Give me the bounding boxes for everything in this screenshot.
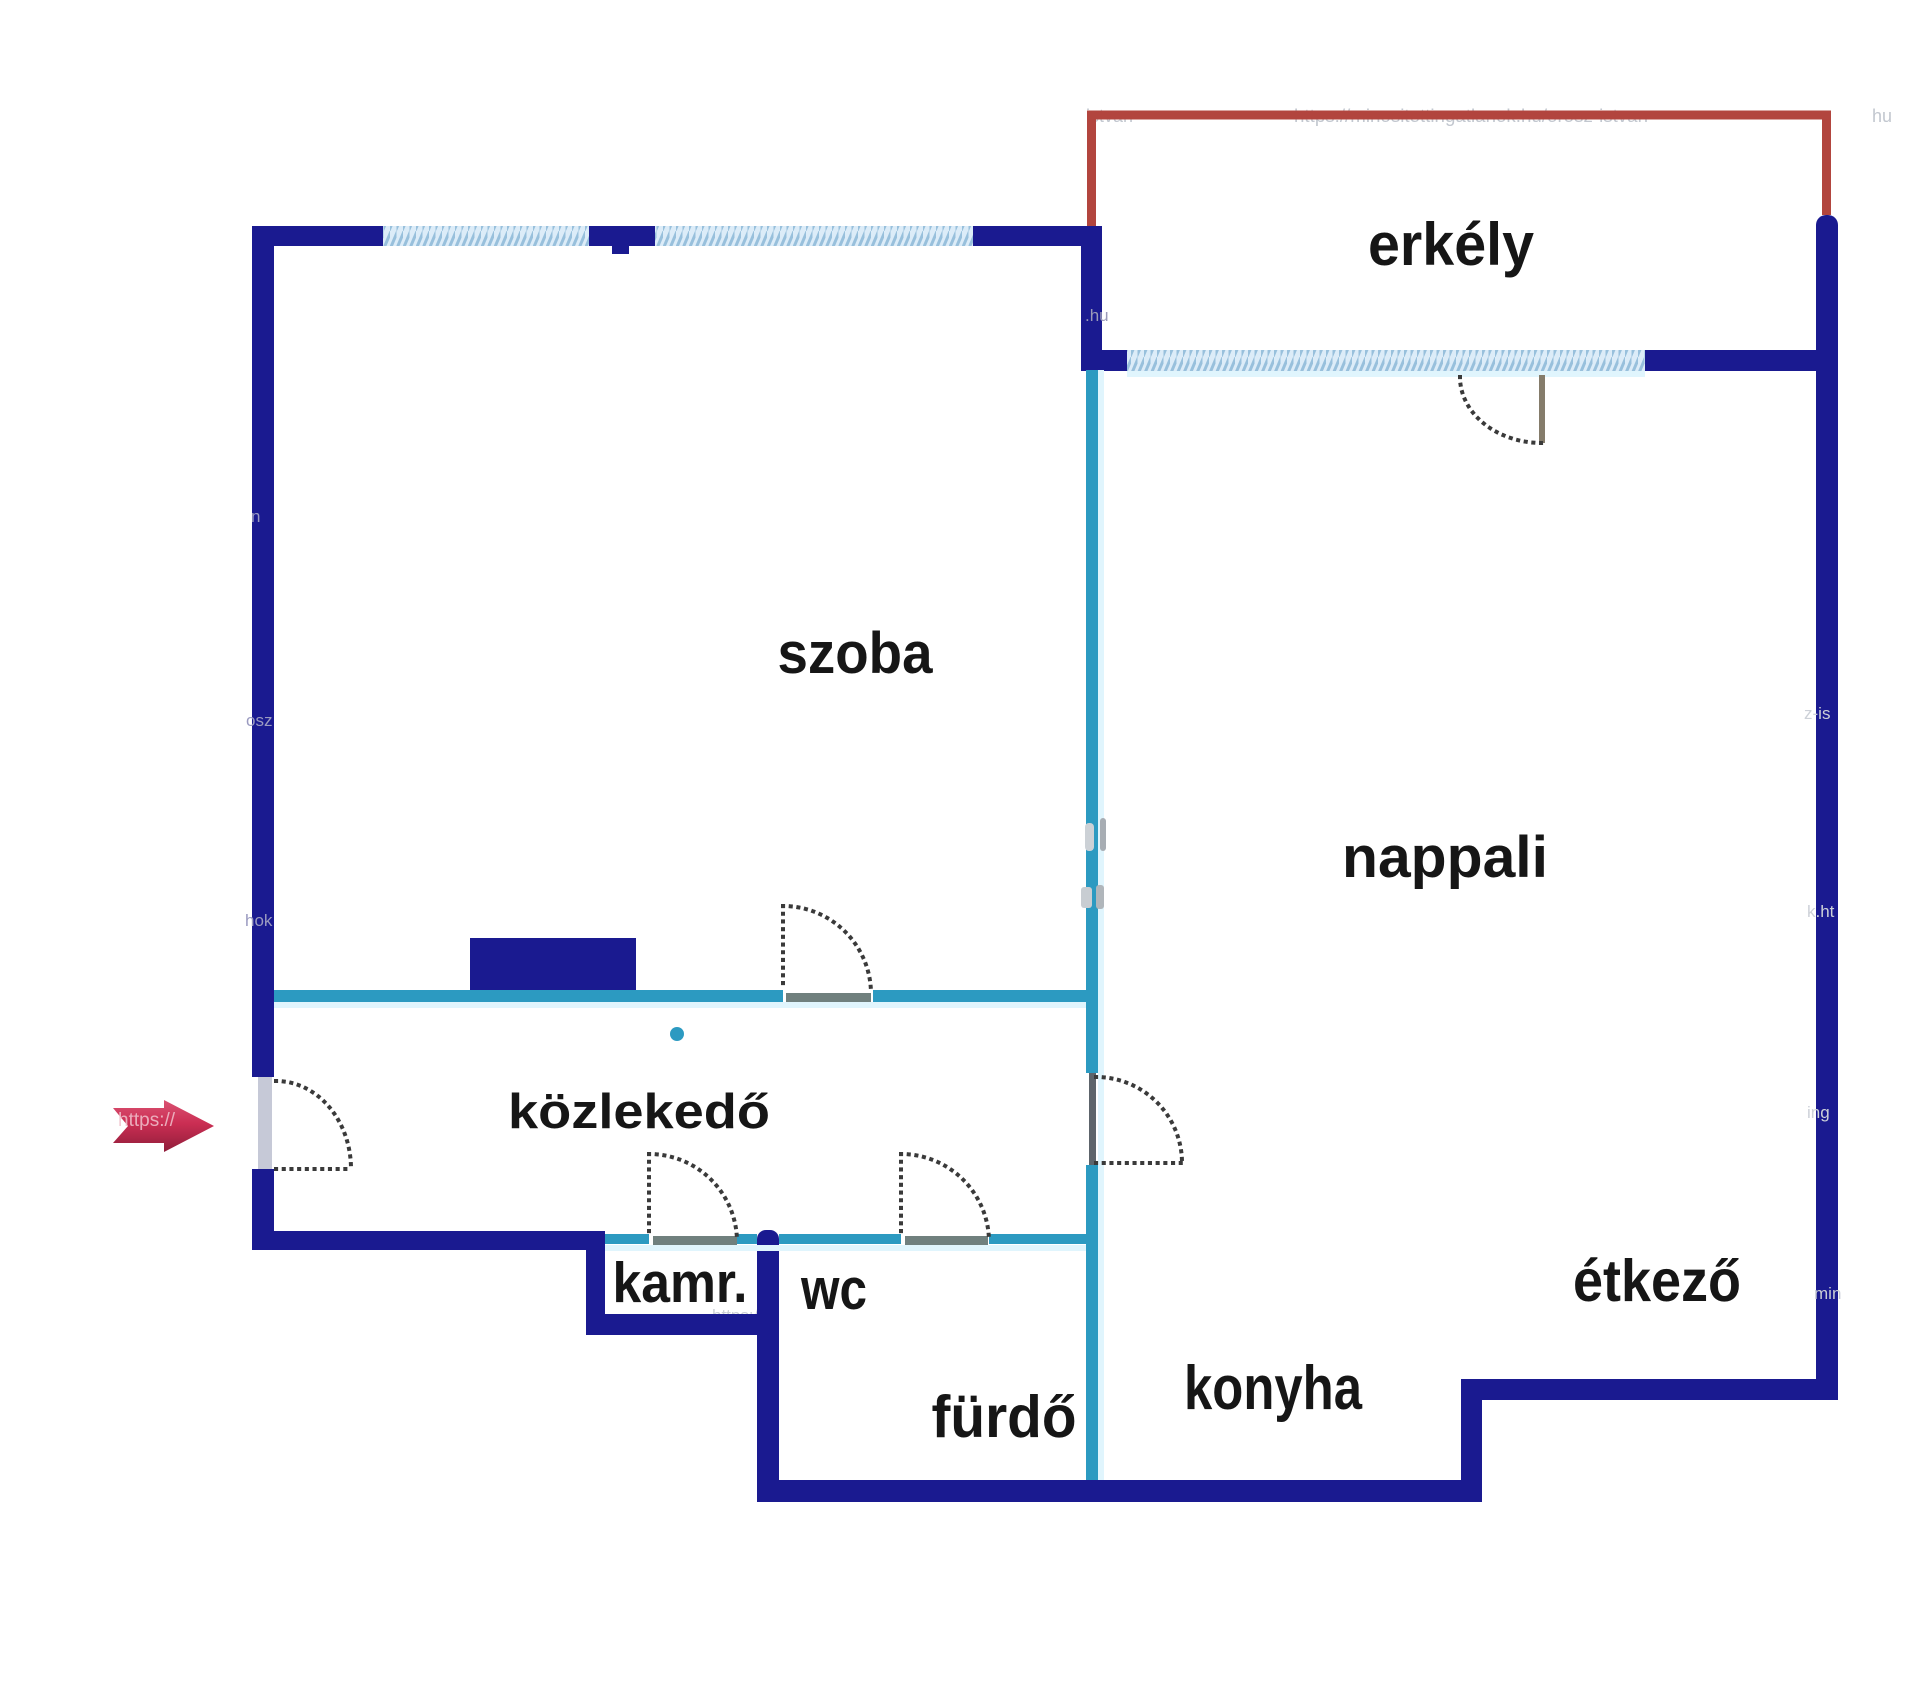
svg-text:szoba: szoba: [778, 621, 934, 686]
svg-text:fürdő: fürdő: [932, 1384, 1077, 1450]
svg-text:ing: ing: [1807, 1103, 1830, 1122]
svg-text:nappali: nappali: [1342, 825, 1548, 890]
svg-text:hu: hu: [1872, 106, 1892, 126]
svg-text:erkély: erkély: [1368, 211, 1535, 278]
svg-text:.hu: .hu: [1085, 306, 1109, 325]
svg-text:osz: osz: [246, 711, 272, 730]
svg-text:https://: https://: [118, 1110, 176, 1131]
svg-text:n: n: [251, 507, 260, 526]
svg-text:közlekedő: közlekedő: [508, 1085, 770, 1139]
svg-text:min: min: [1814, 1284, 1841, 1303]
svg-text:konyha: konyha: [1184, 1354, 1362, 1423]
svg-text:kamr.: kamr.: [613, 1251, 748, 1315]
svg-text:k.ht: k.ht: [1807, 902, 1835, 921]
svg-text:wc: wc: [800, 1257, 867, 1322]
svg-text:étkező: étkező: [1573, 1248, 1741, 1314]
svg-text:z-is: z-is: [1804, 704, 1830, 723]
svg-text:hok: hok: [245, 911, 273, 930]
